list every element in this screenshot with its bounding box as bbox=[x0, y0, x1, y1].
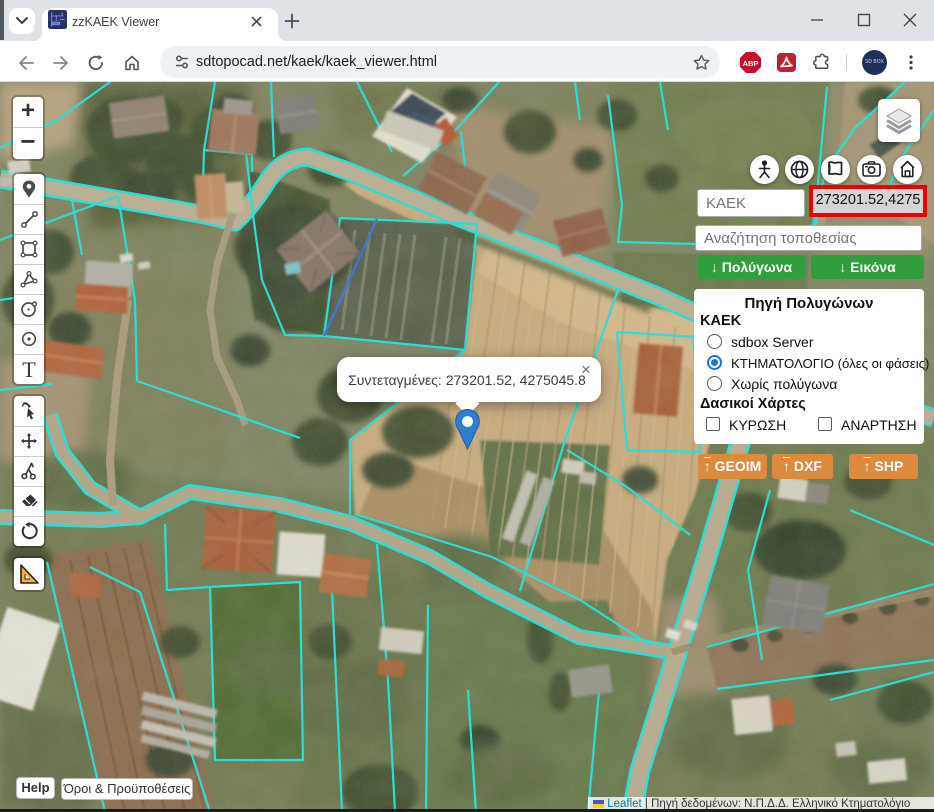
svg-text:ABP: ABP bbox=[743, 59, 759, 68]
svg-text:BOX: BOX bbox=[52, 21, 61, 26]
